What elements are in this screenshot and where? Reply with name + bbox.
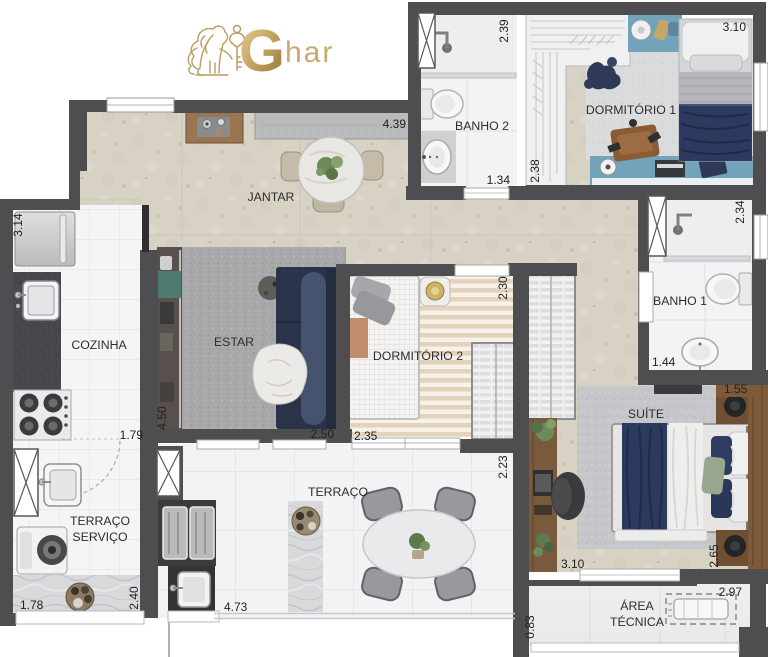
svg-text:4.50: 4.50	[155, 406, 169, 430]
svg-text:COZINHA: COZINHA	[71, 338, 127, 352]
svg-text:2.97: 2.97	[719, 585, 743, 599]
svg-text:1.79: 1.79	[120, 428, 144, 442]
svg-text:SUÍTE: SUÍTE	[628, 406, 664, 421]
svg-text:DORMITÓRIO 2: DORMITÓRIO 2	[373, 348, 463, 363]
svg-text:2.35: 2.35	[354, 429, 378, 443]
svg-text:2.50: 2.50	[311, 427, 335, 441]
svg-text:2.23: 2.23	[496, 455, 510, 479]
svg-text:2.30: 2.30	[496, 276, 510, 300]
svg-text:JANTAR: JANTAR	[248, 190, 295, 204]
svg-text:har: har	[285, 36, 334, 69]
svg-text:0.83: 0.83	[523, 615, 537, 639]
svg-text:1.78: 1.78	[20, 598, 44, 612]
svg-text:SERVIÇO: SERVIÇO	[72, 530, 127, 544]
svg-text:ÁREA: ÁREA	[620, 598, 654, 613]
svg-text:1.55: 1.55	[724, 382, 748, 396]
svg-text:3.14: 3.14	[11, 213, 25, 237]
svg-text:1.44: 1.44	[652, 355, 676, 369]
svg-text:3.10: 3.10	[561, 557, 585, 571]
svg-text:2.34: 2.34	[733, 200, 747, 224]
svg-text:TÉCNICA: TÉCNICA	[610, 614, 665, 629]
svg-text:4.73: 4.73	[224, 600, 248, 614]
svg-text:2.40: 2.40	[127, 586, 141, 610]
svg-text:DORMITÓRIO 1: DORMITÓRIO 1	[586, 102, 676, 117]
svg-text:TERRAÇO: TERRAÇO	[70, 514, 130, 528]
svg-text:2.38: 2.38	[528, 159, 542, 183]
svg-text:4.39: 4.39	[383, 117, 407, 131]
svg-text:1.34: 1.34	[487, 173, 511, 187]
svg-text:TERRAÇO: TERRAÇO	[308, 485, 368, 499]
svg-text:BANHO 2: BANHO 2	[455, 119, 509, 133]
svg-text:G: G	[239, 18, 285, 84]
svg-text:BANHO 1: BANHO 1	[653, 294, 707, 308]
svg-text:ESTAR: ESTAR	[214, 335, 254, 349]
svg-text:3.10: 3.10	[723, 20, 747, 34]
svg-text:2.65: 2.65	[707, 544, 721, 568]
svg-text:2.39: 2.39	[497, 19, 511, 43]
